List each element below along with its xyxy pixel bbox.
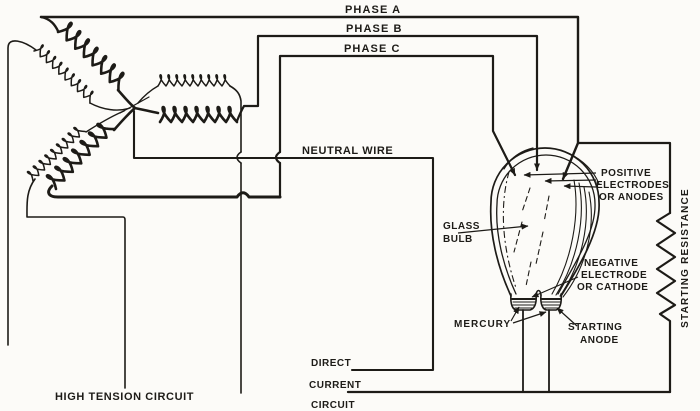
mercury-label: MERCURY [454,319,511,330]
starting-resistance [657,213,675,392]
negative-electrode-label-line1: NEGATIVE [584,258,638,269]
neutral-wire-label: NEUTRAL WIRE [302,145,393,157]
diagram-canvas: PHASE A PHASE B PHASE C NEUTRAL WIRE GLA… [0,0,700,411]
primary-coil-1 [34,43,97,103]
mercury-arc-rectifier-diagram: PHASE A PHASE B PHASE C NEUTRAL WIRE GLA… [0,0,700,411]
dc-circuit-label-line3: CIRCUIT [311,400,355,411]
dc-circuit-label-line2: CURRENT [309,380,361,391]
starting-anode-label-line2: ANODE [580,335,619,346]
mercury-arrow-2 [513,312,546,323]
positive-electrodes-label-line3: OR ANODES [599,192,664,203]
high-tension-leads [8,41,241,393]
mercury-hatch-left [513,302,535,308]
high-tension-lead-1 [8,41,36,345]
positive-electrodes-label-line2: ELECTRODES [596,180,669,191]
primary-coil-3 [158,75,230,86]
vapor-line-1 [503,172,516,288]
junction-lead-thin-3 [138,86,158,103]
phase-c-label: PHASE C [344,43,401,55]
high-tension-lead-2 [27,179,125,388]
positive-electrodes-arrow-2 [545,180,596,181]
negative-electrode-arrow [532,277,578,297]
vapor-dash-5 [526,262,531,286]
mercury-hatch-right [542,302,561,308]
positive-electrodes-label-line1: POSITIVE [601,168,651,179]
dc-circuit-wires [134,111,670,392]
vapor-dash-4 [536,232,543,264]
junction-lead-thick-1 [118,90,135,108]
secondary-coil-1 [58,21,129,91]
dc-circuit-label-line1: DIRECT [311,358,351,369]
phase-b-label: PHASE B [346,23,403,35]
junction-lead-thin-1 [90,103,130,110]
starting-resistance-label: STARTING RESISTANCE [680,188,691,328]
vapor-dash-1 [522,188,530,212]
secondary-coil-3 [160,107,237,122]
junction-lead-thick-3 [134,108,158,113]
phase-a-label: PHASE A [345,4,401,16]
negative-electrode-label-line3: OR CATHODE [577,282,648,293]
glass-bulb-label-line2: BULB [443,234,473,245]
starting-anode-label-line1: STARTING [568,322,622,333]
high-tension-circuit-label: HIGH TENSION CIRCUIT [55,391,194,403]
transformer-windings [26,21,237,189]
resistor-zigzag [657,213,675,392]
glass-bulb-label-line1: GLASS [443,221,480,232]
negative-electrode-label-line2: ELECTRODE [581,270,647,281]
phase-a-hook [41,17,58,31]
secondary-2-return-wire [49,186,280,197]
vapor-dash-2 [544,196,549,222]
